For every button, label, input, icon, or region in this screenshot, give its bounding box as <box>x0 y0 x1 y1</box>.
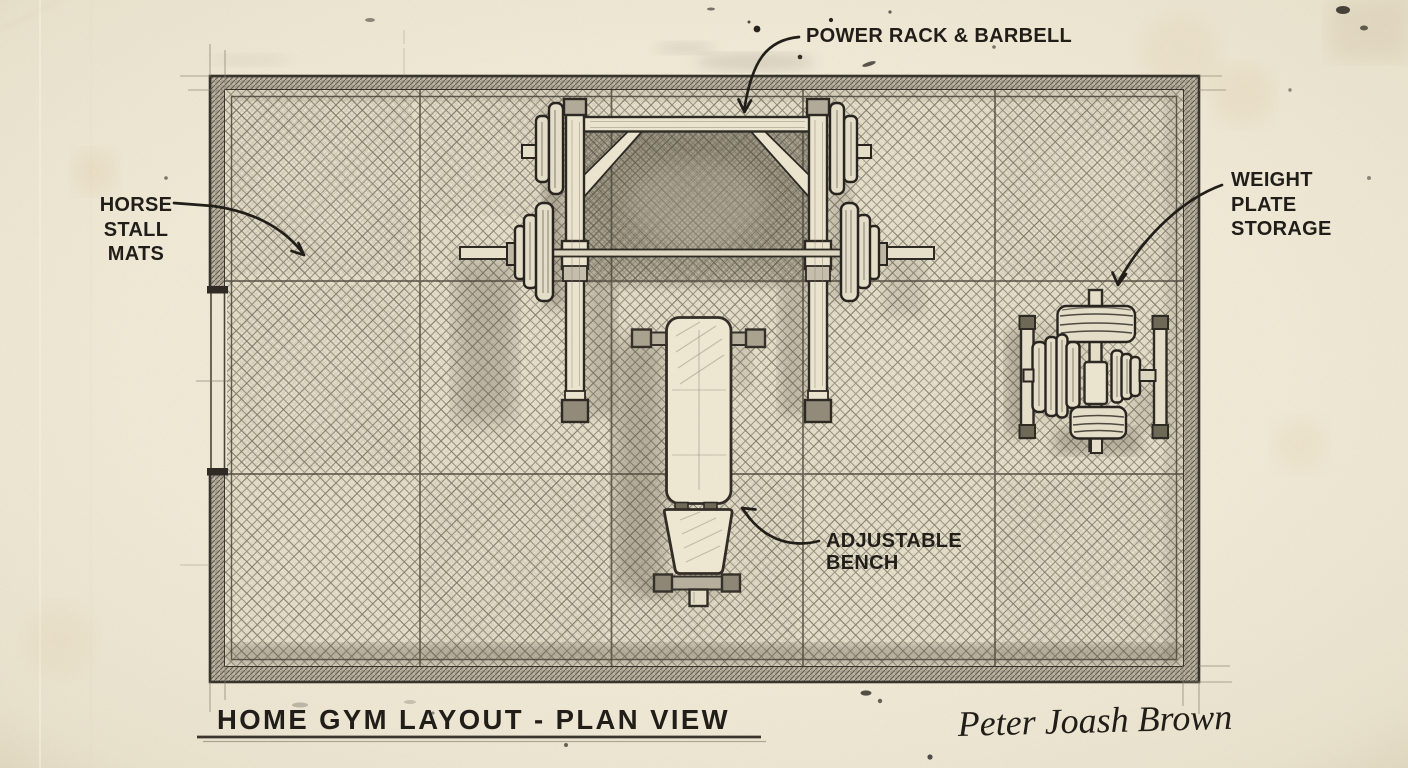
svg-text:STALL: STALL <box>104 219 168 241</box>
svg-text:POWER RACK & BARBELL: POWER RACK & BARBELL <box>806 25 1072 47</box>
svg-text:STORAGE: STORAGE <box>1231 218 1332 240</box>
svg-text:WEIGHT: WEIGHT <box>1231 169 1313 191</box>
svg-text:BENCH: BENCH <box>826 552 899 574</box>
svg-text:HOME GYM LAYOUT - PLAN VIEW: HOME GYM LAYOUT - PLAN VIEW <box>217 704 730 735</box>
svg-text:MATS: MATS <box>108 243 164 265</box>
svg-text:HORSE: HORSE <box>100 194 173 216</box>
svg-text:Peter Joash Brown: Peter Joash Brown <box>956 697 1233 744</box>
svg-text:ADJUSTABLE: ADJUSTABLE <box>826 530 962 552</box>
svg-text:PLATE: PLATE <box>1231 194 1297 216</box>
